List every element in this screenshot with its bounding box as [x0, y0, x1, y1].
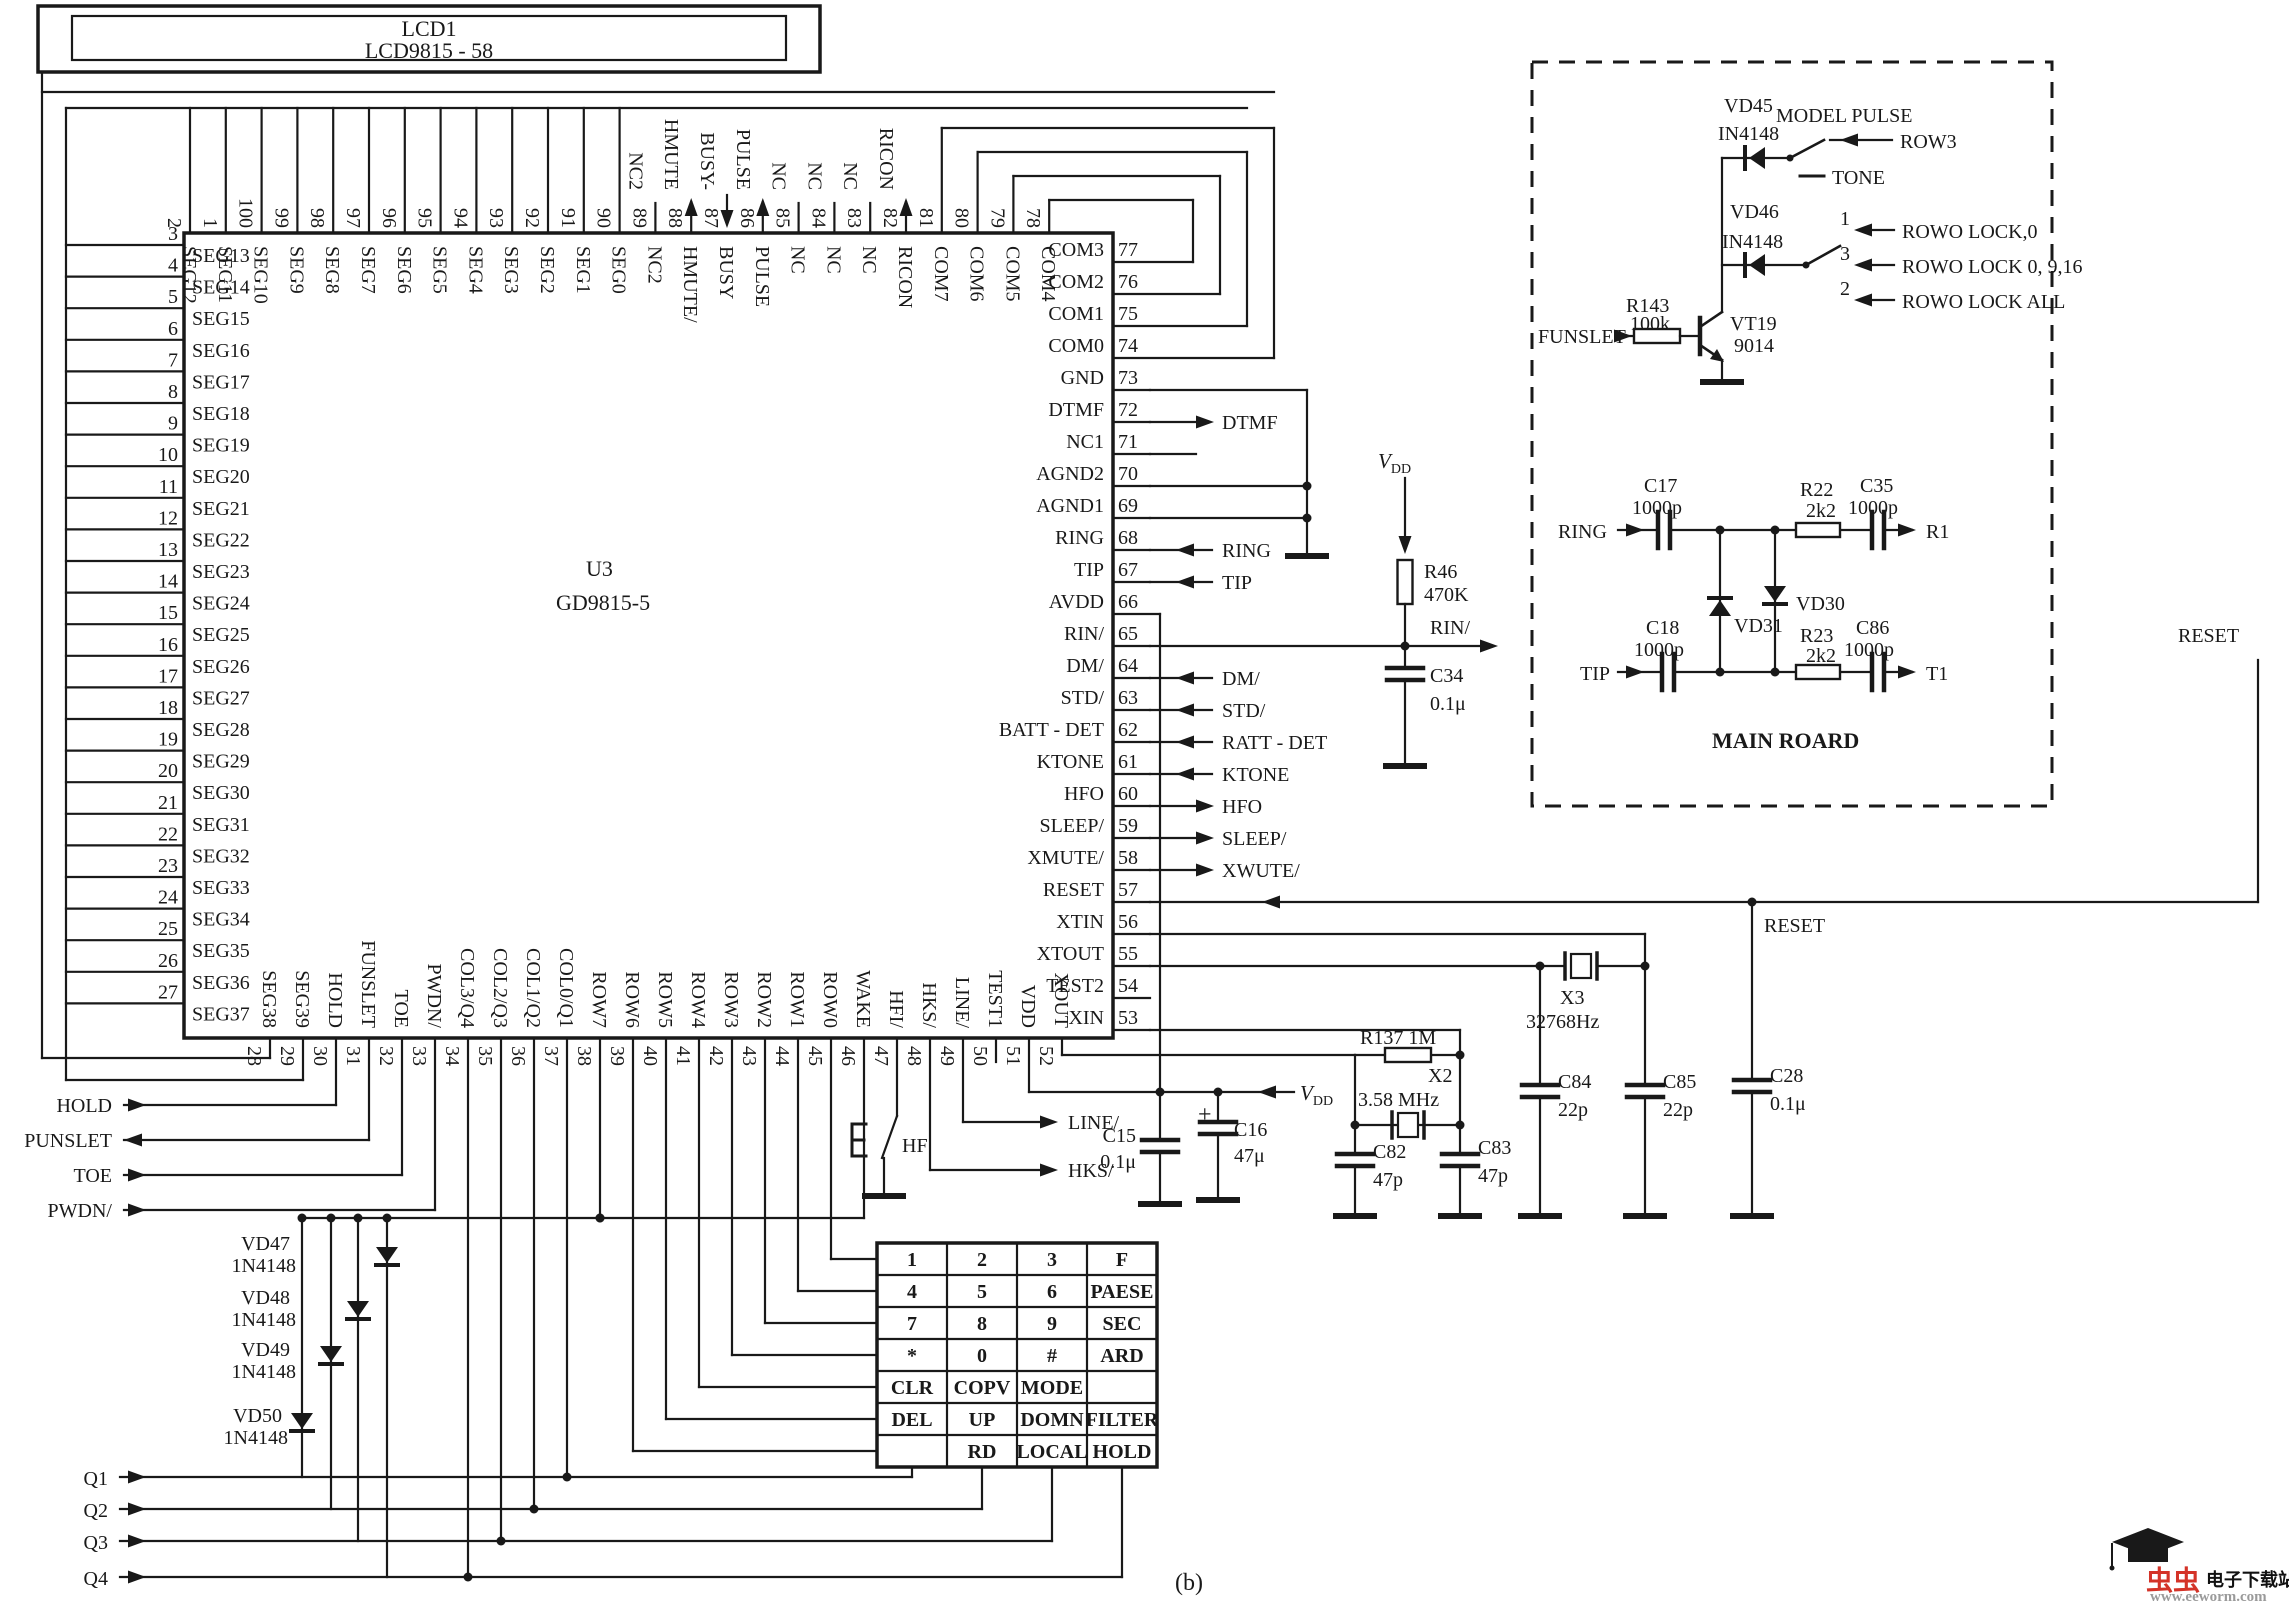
pin-number: 9 [168, 413, 178, 435]
ext-net-label: KTONE [1222, 764, 1289, 786]
crystal-icon [1571, 954, 1591, 978]
component-value: 1N4148 [224, 1427, 288, 1449]
pin-label: SEG5 [429, 246, 451, 294]
diode-icon [1764, 586, 1786, 602]
pin-label: TOE [390, 989, 412, 1028]
pin-number: 100 [235, 198, 257, 228]
pin-number: 2 [163, 218, 185, 228]
pin-label: HFO [1064, 783, 1104, 805]
junction-dot [327, 1214, 336, 1223]
pin-label: SEG20 [192, 466, 250, 488]
arrow-left-icon [1258, 1086, 1276, 1099]
component-value: 22p [1558, 1099, 1588, 1121]
pin-number: 78 [1022, 208, 1044, 228]
pin-number: 4 [168, 255, 178, 277]
pin-number: 91 [557, 208, 579, 228]
pin-label: SEG11 [214, 246, 236, 303]
pin-label: SEG30 [192, 782, 250, 804]
component-ref: C34 [1430, 665, 1463, 687]
arrow-right-icon [128, 1571, 146, 1584]
keypad-key: RD [968, 1441, 997, 1463]
net-label: ROWO LOCK ALL [1902, 291, 2065, 313]
pin-number: 93 [485, 208, 507, 228]
net-label-vdd-rail: VDD [1300, 1081, 1333, 1109]
chip-u3 [184, 233, 1113, 1038]
pin-label: SEG6 [393, 246, 415, 294]
junction-dot [1351, 1121, 1360, 1130]
component-ref: C85 [1663, 1071, 1696, 1093]
arrow-left-icon [1176, 672, 1194, 685]
component-ref: C28 [1770, 1065, 1803, 1087]
arrow-right-icon [1040, 1164, 1058, 1177]
pin-number: 38 [573, 1046, 595, 1066]
component-value: 9014 [1734, 335, 1774, 357]
arrow-right-icon [128, 1204, 146, 1217]
pin-number: 50 [969, 1046, 991, 1066]
figure-label: (b) [1175, 1570, 1203, 1596]
ext-net-label: PUNSLET [24, 1130, 112, 1152]
ext-net-label: PULSE [732, 129, 754, 190]
pin-number: 40 [639, 1046, 661, 1066]
pin-label: SEG16 [192, 340, 250, 362]
pin-label: NC1 [1066, 431, 1104, 453]
net-label: RESET [1764, 915, 1825, 937]
pin-number: 1 [199, 218, 221, 228]
keypad-key: 6 [1047, 1281, 1057, 1303]
component-value: 22p [1663, 1099, 1693, 1121]
keypad-key: LOCAL [1016, 1441, 1087, 1463]
pin-number: 12 [158, 507, 178, 529]
pin-label: ROW6 [621, 971, 643, 1028]
pin-label: SEG9 [285, 246, 307, 294]
polarity-plus: + [1198, 1102, 1212, 1128]
pin-label: SEG37 [192, 1003, 250, 1025]
diode-icon [291, 1413, 313, 1429]
pin-number: 45 [804, 1046, 826, 1066]
pin-label: NC [787, 246, 809, 274]
junction-dot [298, 1214, 307, 1223]
pin-number: 55 [1118, 943, 1138, 965]
component-ref: C83 [1478, 1137, 1511, 1159]
ext-net-label: RICON [875, 128, 897, 190]
pin-number: 18 [158, 697, 178, 719]
pin-label: SLEEP/ [1040, 815, 1105, 837]
component-value: 470K [1424, 584, 1469, 606]
pin-label: RESET [1043, 879, 1104, 901]
junction-dot [596, 1214, 605, 1223]
component-value: 1000p [1634, 639, 1684, 661]
junction-dot [1303, 482, 1312, 491]
pin-label: COM0 [1048, 335, 1104, 357]
board-title: MAIN ROARD [1712, 728, 1859, 753]
pin-number: 37 [540, 1046, 562, 1066]
switch-position: 3 [1840, 243, 1850, 265]
component-value: 100k [1630, 313, 1670, 335]
ext-net-label: NC [839, 162, 861, 190]
pin-number: 49 [936, 1046, 958, 1066]
pin-number: 19 [158, 729, 178, 751]
arrow-right-icon [1898, 524, 1916, 537]
pin-number: 94 [449, 208, 471, 228]
diode-icon [1749, 147, 1765, 169]
pin-label: SEG35 [192, 940, 250, 962]
pin-label: DM/ [1066, 655, 1104, 677]
pin-number: 23 [158, 855, 178, 877]
pin-label: ROW0 [819, 971, 841, 1028]
keypad-key: 7 [907, 1313, 917, 1335]
arrow-right-icon [1626, 524, 1644, 537]
ext-net-label: HMUTE [660, 119, 682, 190]
component-value: IN4148 [1718, 123, 1779, 145]
pin-label: SEG22 [192, 529, 250, 551]
chip-ref: U3 [586, 556, 613, 581]
junction-dot [1303, 514, 1312, 523]
lcd-model: LCD9815 - 58 [365, 38, 493, 63]
component-value: 1N4148 [232, 1255, 296, 1277]
arrow-left-icon [1176, 576, 1194, 589]
pin-number: 31 [342, 1046, 364, 1066]
component-value: 2k2 [1806, 500, 1836, 522]
q-output-label: Q3 [84, 1532, 108, 1554]
arrow-right-icon [128, 1471, 146, 1484]
pin-label: HKS/ [918, 982, 940, 1028]
net-label: LINE/ [1068, 1112, 1120, 1134]
pin-label: SEG23 [192, 561, 250, 583]
arrow-left-icon [1854, 259, 1872, 272]
pin-label: RICON [894, 246, 916, 308]
pin-label: BATT - DET [999, 719, 1104, 741]
component-ref: R22 [1800, 479, 1833, 501]
pin-label: SEG17 [192, 371, 250, 393]
pin-label: SEG34 [192, 909, 250, 931]
arrow-left-icon [1840, 134, 1858, 147]
pin-label: TEST1 [984, 970, 1006, 1028]
pin-number: 17 [158, 665, 178, 687]
arrow-right-icon [1040, 1116, 1058, 1129]
pin-label: STD/ [1061, 687, 1105, 709]
net-label-vdd-r46: VDD [1378, 449, 1411, 477]
ext-net-label: XWUTE/ [1222, 860, 1300, 882]
pin-number: 71 [1118, 431, 1138, 453]
pin-label: SEG15 [192, 308, 250, 330]
switch-position: 2 [1840, 278, 1850, 300]
pin-number: 29 [276, 1046, 298, 1066]
pin-label: KTONE [1037, 751, 1104, 773]
ext-net-label: T1 [1926, 663, 1948, 685]
net-label: ROW3 [1900, 131, 1957, 153]
pin-number: 30 [309, 1046, 331, 1066]
wire [882, 1116, 897, 1158]
component-value: 2k2 [1806, 645, 1836, 667]
ext-net-label: NC2 [624, 152, 646, 190]
pin-label: NC [858, 246, 880, 274]
pin-number: 39 [606, 1046, 628, 1066]
net-label: RIN/ [1430, 617, 1470, 639]
pin-label: XTIN [1056, 911, 1104, 933]
ext-net-label: RING [1222, 540, 1271, 562]
q-output-label: Q1 [84, 1468, 108, 1490]
pin-label: COM2 [1048, 271, 1104, 293]
component-value: 1000p [1848, 497, 1898, 519]
pin-number: 15 [158, 602, 178, 624]
component-ref: X2 [1428, 1065, 1452, 1087]
pin-number: 70 [1118, 463, 1138, 485]
pin-label: ROW2 [753, 971, 775, 1028]
pin-number: 5 [168, 286, 178, 308]
arrow-right-icon [128, 1535, 146, 1548]
pin-label: RING [1055, 527, 1104, 549]
junction-dot [354, 1214, 363, 1223]
pin-number: 24 [158, 887, 178, 909]
q-output-label: Q4 [84, 1568, 108, 1590]
ext-net-label: TIP [1222, 572, 1252, 594]
component-ref: VD31 [1734, 615, 1783, 637]
pin-label: XTOUT [1037, 943, 1104, 965]
resistor-icon [1796, 665, 1840, 679]
pin-label: HFI/ [885, 990, 907, 1028]
keypad-key: 0 [977, 1345, 987, 1367]
chip-model: GD9815-5 [556, 590, 650, 615]
pin-label: SEG0 [608, 246, 630, 294]
pin-number: 89 [628, 208, 650, 228]
pin-number: 72 [1118, 399, 1138, 421]
pin-number: 87 [700, 208, 722, 228]
arrow-left-icon [1854, 294, 1872, 307]
component-ref: X3 [1560, 987, 1584, 1009]
net-label: HKS/ [1068, 1160, 1114, 1182]
switch-position: 1 [1840, 208, 1850, 230]
pin-number: 26 [158, 950, 178, 972]
pin-number: 81 [915, 208, 937, 228]
junction-dot [1456, 1121, 1465, 1130]
component-ref: R46 [1424, 561, 1457, 583]
ext-net-label: RATT - DET [1222, 732, 1327, 754]
pin-number: 76 [1118, 271, 1138, 293]
pin-number: 25 [158, 918, 178, 940]
pin-label: SEG19 [192, 435, 250, 457]
pin-label: SEG3 [500, 246, 522, 294]
pin-label: SEG12 [178, 246, 200, 304]
pin-label: SEG39 [291, 970, 313, 1028]
pin-label: SEG10 [250, 246, 272, 304]
component-ref: C86 [1856, 617, 1889, 639]
pin-label: COL3/Q4 [456, 948, 478, 1028]
component-ref: VD46 [1730, 201, 1779, 223]
component-value: 1N4148 [232, 1309, 296, 1331]
pin-number: 52 [1035, 1046, 1057, 1066]
ext-net-label: NC [768, 162, 790, 190]
pin-label: COL2/Q3 [489, 948, 511, 1028]
arrow-right-icon [128, 1099, 146, 1112]
pin-number: 61 [1118, 751, 1138, 773]
component-value: 47p [1373, 1169, 1403, 1191]
net-label: RESET [2178, 625, 2239, 647]
arrow-right-icon [1898, 666, 1916, 679]
pin-number: 33 [408, 1046, 430, 1066]
ext-net-label: R1 [1926, 521, 1949, 543]
pin-number: 27 [158, 981, 178, 1003]
pin-label: SEG27 [192, 687, 250, 709]
pin-number: 63 [1118, 687, 1138, 709]
pin-number: 21 [158, 792, 178, 814]
ext-net-label: TIP [1580, 663, 1610, 685]
pin-label: GND [1061, 367, 1104, 389]
pin-number: 75 [1118, 303, 1138, 325]
component-value: 3.58 MHz [1358, 1089, 1439, 1111]
switch-label: MODEL PULSE [1776, 105, 1912, 127]
keypad-key: DEL [891, 1409, 932, 1431]
component-ref: C35 [1860, 475, 1893, 497]
pin-label: SEG32 [192, 845, 250, 867]
wire [1806, 246, 1840, 265]
pin-number: 16 [158, 634, 178, 656]
arrow-up-icon [685, 198, 698, 216]
pin-label: NC [822, 246, 844, 274]
pin-number: 84 [807, 208, 829, 228]
pin-label: FUNSLET [357, 940, 379, 1028]
component-ref: VD50 [233, 1405, 282, 1427]
pin-number: 47 [870, 1046, 892, 1066]
pin-label: WAKE [852, 970, 874, 1028]
pin-number: 90 [593, 208, 615, 228]
ext-net-label: NC [803, 162, 825, 190]
arrow-left-icon [1262, 896, 1280, 909]
component-value: 0.1μ [1430, 693, 1466, 715]
pin-label: COM7 [930, 246, 952, 302]
arrow-right-icon [1626, 666, 1644, 679]
component-ref: C18 [1646, 617, 1679, 639]
junction-dot [1641, 962, 1650, 971]
keypad-key: PAESE [1091, 1281, 1154, 1303]
diode-icon [376, 1247, 398, 1263]
keypad-key: CLR [891, 1377, 934, 1399]
pin-number: 32 [375, 1046, 397, 1066]
pin-label: SEG29 [192, 751, 250, 773]
pin-number: 69 [1118, 495, 1138, 517]
keypad-key: 9 [1047, 1313, 1057, 1335]
keypad-key: 5 [977, 1281, 987, 1303]
pin-label: PWDN/ [423, 964, 445, 1029]
pin-number: 92 [521, 208, 543, 228]
ext-net-label: FUNSLET [1538, 326, 1626, 348]
keypad-key: HOLD [1093, 1441, 1152, 1463]
net-label: ROWO LOCK,0 [1902, 221, 2038, 243]
arrow-right-icon [128, 1169, 146, 1182]
pin-number: 74 [1118, 335, 1138, 357]
pin-number: 44 [771, 1046, 793, 1066]
ext-net-label: PWDN/ [48, 1200, 113, 1222]
pin-label: SEG38 [258, 970, 280, 1028]
pin-number: 85 [772, 208, 794, 228]
keypad-key: COPV [954, 1377, 1011, 1399]
pin-number: 53 [1118, 1007, 1138, 1029]
component-ref: VD45 [1724, 95, 1773, 117]
ext-net-label: DM/ [1222, 668, 1260, 690]
pin-number: 65 [1118, 623, 1138, 645]
arrow-up-icon [756, 198, 769, 216]
pin-number: 28 [243, 1046, 265, 1066]
pin-label: SEG25 [192, 624, 250, 646]
pin-number: 66 [1118, 591, 1138, 613]
component-ref: VD49 [241, 1339, 290, 1361]
pin-label: ROW5 [654, 971, 676, 1028]
pin-number: 67 [1118, 559, 1138, 581]
arrow-left-icon [1854, 224, 1872, 237]
pin-label: COM6 [966, 246, 988, 302]
ext-net-label: HFO [1222, 796, 1262, 818]
diode-icon [1749, 254, 1765, 276]
pin-label: SEG7 [357, 246, 379, 294]
pin-label: ROW7 [588, 971, 610, 1028]
ext-net-label: RING [1558, 521, 1607, 543]
pin-label: RIN/ [1064, 623, 1104, 645]
resistor-icon [1385, 1048, 1431, 1062]
pin-number: 97 [342, 208, 364, 228]
pin-label: ROW4 [687, 971, 709, 1028]
keypad-key: 4 [907, 1281, 917, 1303]
arrow-right-icon [1480, 640, 1498, 653]
pin-number: 56 [1118, 911, 1138, 933]
component-ref: VD30 [1796, 593, 1845, 615]
pin-number: 48 [903, 1046, 925, 1066]
pin-label: COL0/Q1 [555, 948, 577, 1028]
arrow-up-icon [900, 198, 913, 216]
keypad-key: 1 [907, 1249, 917, 1271]
pin-number: 7 [168, 349, 178, 371]
pin-label: SEG31 [192, 814, 250, 836]
pin-number: 77 [1118, 239, 1138, 261]
pin-number: 13 [158, 539, 178, 561]
pin-label: LINE/ [951, 977, 973, 1029]
component-ref: C17 [1644, 475, 1677, 497]
pin-number: 73 [1118, 367, 1138, 389]
pin-label: SEG24 [192, 593, 250, 615]
pin-number: 60 [1118, 783, 1138, 805]
component-ref: R137 1M [1360, 1027, 1436, 1049]
pin-label: SEG8 [321, 246, 343, 294]
pin-label: COL1/Q2 [522, 948, 544, 1028]
pin-number: 64 [1118, 655, 1138, 677]
arrow-left-icon [1176, 544, 1194, 557]
pin-number: 95 [414, 208, 436, 228]
dashed-box [1532, 62, 2052, 806]
wire [1700, 312, 1722, 327]
pin-label: NC2 [643, 246, 665, 284]
arrow-left-icon [124, 1134, 142, 1147]
net-label: ROWO LOCK 0, 9,16 [1902, 256, 2083, 278]
pin-label: SEG18 [192, 403, 250, 425]
component-value: 1000p [1844, 639, 1894, 661]
watermark-cap-icon [2110, 1566, 2115, 1571]
ext-net-label: TOE [73, 1165, 112, 1187]
keypad-key: 8 [977, 1313, 987, 1335]
pin-label: AVDD [1049, 591, 1104, 613]
pin-number: 11 [159, 476, 178, 498]
keypad-key: # [1047, 1345, 1057, 1367]
pin-label: COM1 [1048, 303, 1104, 325]
component-value: 0.1μ [1770, 1093, 1806, 1115]
pin-label: COM3 [1048, 239, 1104, 261]
component-value: IN4148 [1722, 231, 1783, 253]
component-value: 1000p [1632, 497, 1682, 519]
ext-net-label: BUSY- [696, 132, 718, 190]
pin-label: XOUT [1050, 972, 1072, 1028]
pin-number: 62 [1118, 719, 1138, 741]
pin-number: 43 [738, 1046, 760, 1066]
pin-number: 34 [441, 1046, 463, 1066]
pin-number: 96 [378, 208, 400, 228]
component-value: 47p [1478, 1165, 1508, 1187]
